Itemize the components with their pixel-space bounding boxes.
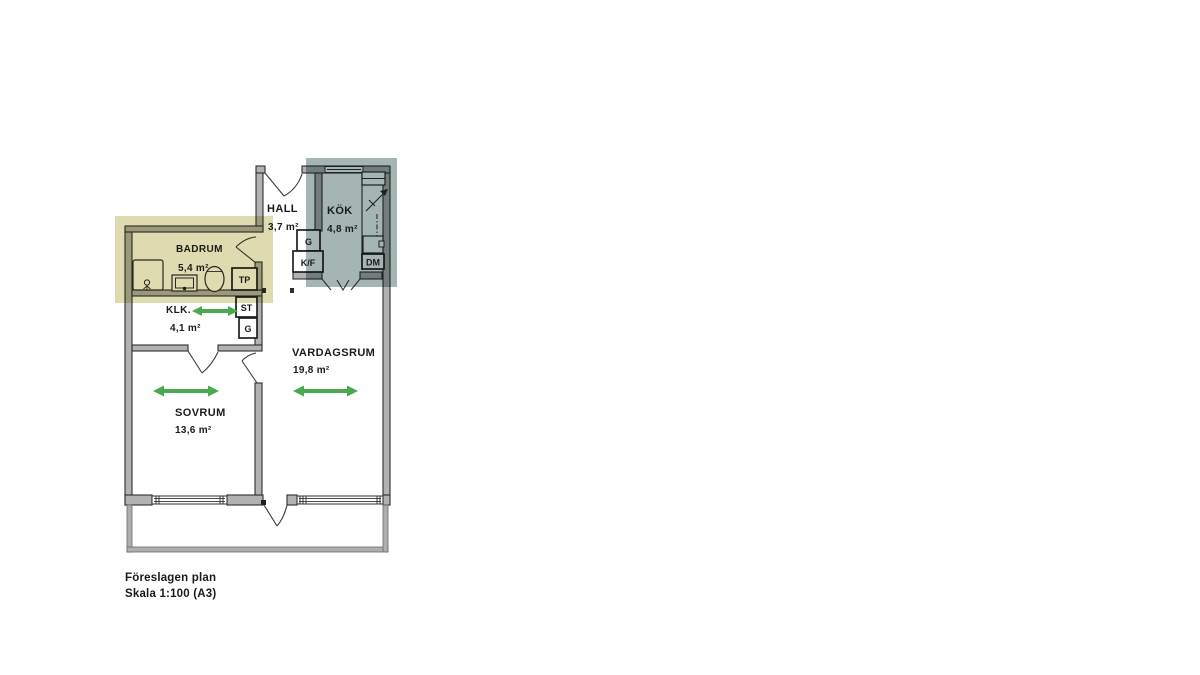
sovrum-turning-space-arrow-icon [153, 386, 219, 397]
sovrum-window-icon [152, 496, 227, 504]
sovrum-area: 13,6 m² [175, 425, 212, 436]
wall-bottom-d [383, 495, 390, 505]
klk-name: KLK. [166, 305, 191, 316]
kok-area: 4,8 m² [327, 224, 358, 235]
dm-label: DM [366, 258, 380, 268]
vardagsrum-area: 19,8 m² [293, 365, 330, 376]
wall-sovrum-divider [255, 383, 262, 495]
klk-area: 4,1 m² [170, 323, 201, 334]
entrance-door-swing-icon [265, 173, 302, 196]
hall-name: HALL [267, 203, 298, 215]
tp-label: TP [239, 275, 251, 285]
balcony-wall-left [127, 505, 132, 552]
vardagsrum-window-icon [297, 496, 383, 504]
balcony [127, 505, 388, 552]
balcony-door-swing-icon [261, 500, 287, 526]
badrum-highlight [115, 216, 273, 303]
sovrum-door-swing-icon [242, 353, 257, 383]
hall-area: 3,7 m² [268, 222, 299, 233]
balcony-wall-right [383, 505, 388, 552]
badrum-name: BADRUM [176, 244, 223, 255]
g-hall-label: G [305, 237, 312, 247]
caption-line1: Föreslagen plan [125, 572, 216, 584]
wall-bottom-a [125, 495, 152, 505]
g-klk-label: G [244, 324, 251, 334]
floor-plan-page: TP ST G G K/F DM BADRUM 5,4 m² HALL 3,7 … [0, 0, 1200, 675]
st-label: ST [241, 303, 253, 313]
vardagsrum-turning-space-arrow-icon [293, 386, 358, 397]
wall-top-left-stub [256, 166, 265, 173]
floor-plan-drawing: TP ST G G K/F DM BADRUM 5,4 m² HALL 3,7 … [0, 0, 1200, 675]
kf-label: K/F [301, 258, 316, 268]
wall-klk-bottom-right [218, 345, 262, 351]
klk-turning-space-arrow-icon [192, 306, 238, 316]
wall-bottom-b [227, 495, 263, 505]
kok-name: KÖK [327, 204, 353, 217]
caption-line2: Skala 1:100 (A3) [125, 588, 216, 600]
caption: Föreslagen plan Skala 1:100 (A3) [125, 572, 216, 600]
wall-klk-bottom-left [132, 345, 188, 351]
balcony-wall-bottom [127, 547, 388, 552]
sovrum-name: SOVRUM [175, 407, 226, 419]
vardagsrum-name: VARDAGSRUM [292, 347, 375, 359]
klk-door-swing-icon [188, 351, 218, 373]
wall-bottom-c [287, 495, 297, 505]
passage-jamb-right [290, 288, 294, 293]
badrum-area: 5,4 m² [178, 263, 209, 274]
kok-highlight [306, 158, 397, 287]
